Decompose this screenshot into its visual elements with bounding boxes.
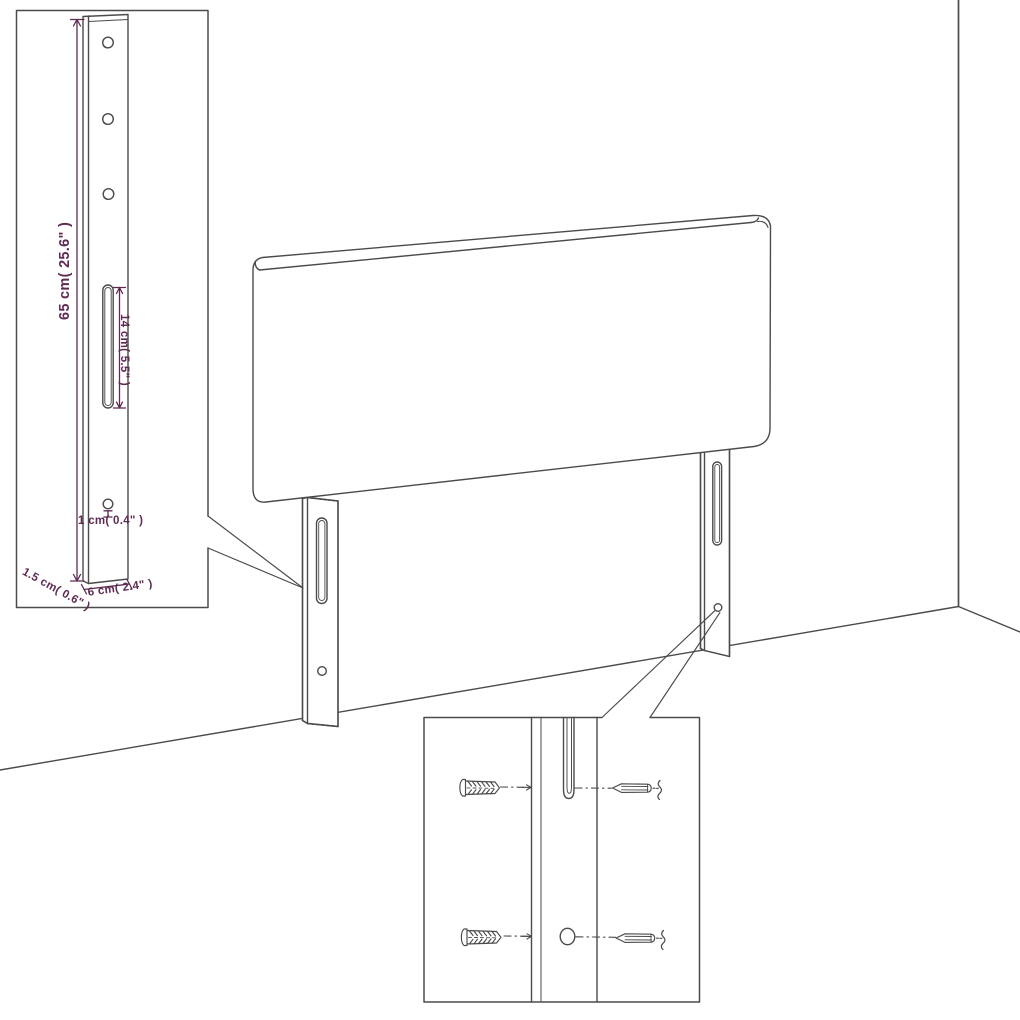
leg-detail-drawing [83,15,128,584]
callout-wedge-left [208,516,303,588]
headboard-panel [253,215,771,502]
hole-dimension-label: 1 cm( 0.4" ) [78,515,143,528]
slot-dimension-label: 14 cm( 5.5" ) [117,314,130,386]
hardware-inset-box [424,718,700,1003]
height-dimension-label: 65 cm( 25.6" ) [58,222,74,320]
left-leg [303,498,339,727]
headboard-diagram-lineart [0,0,1020,1020]
diagram-canvas: 65 cm( 25.6" ) 14 cm( 5.5" ) 1 cm( 0.4" … [0,0,1020,1020]
floor-line-right [959,607,1020,633]
right-leg [701,448,730,657]
